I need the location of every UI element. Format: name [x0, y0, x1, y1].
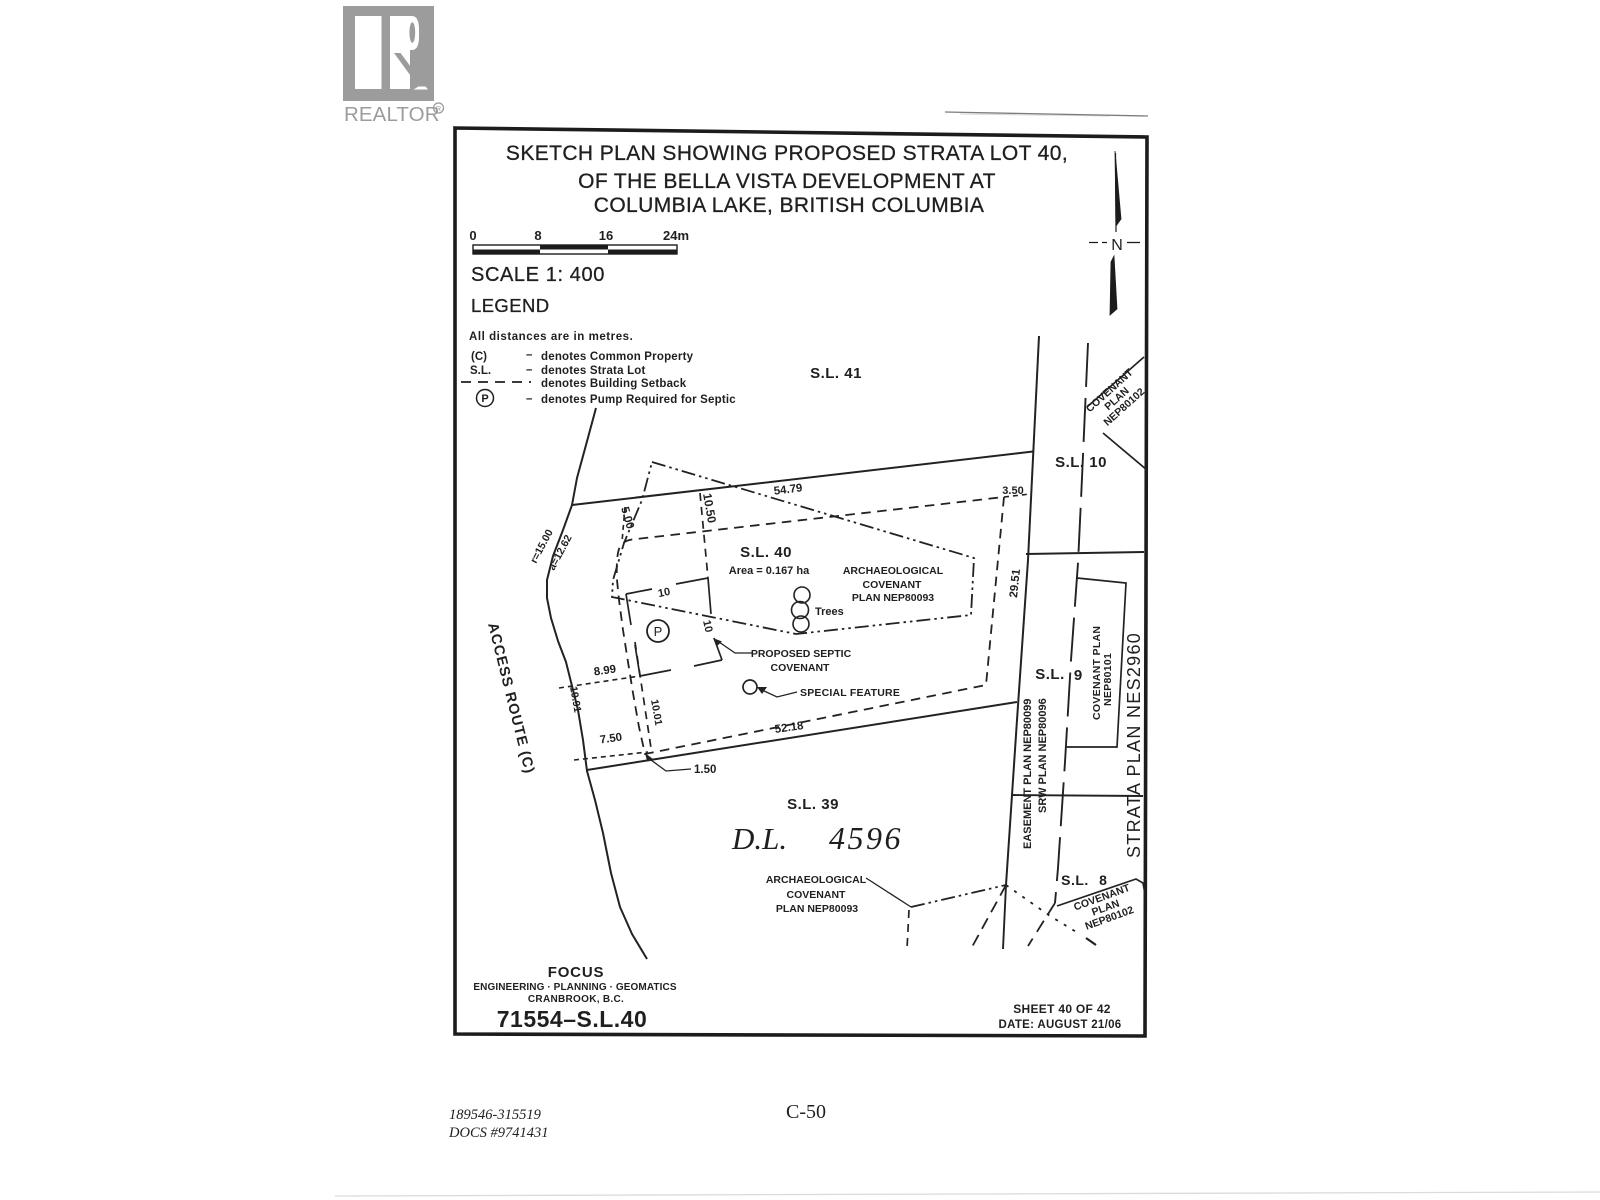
- svg-text:COLUMBIA LAKE, BRITISH COLUMBI: COLUMBIA LAKE, BRITISH COLUMBIA: [594, 194, 985, 217]
- svg-text:COVENANT: COVENANT: [771, 662, 831, 674]
- svg-text:S.L. 40: S.L. 40: [740, 544, 792, 561]
- svg-text:(C): (C): [471, 351, 487, 363]
- svg-text:0: 0: [469, 228, 476, 243]
- svg-text:LEGEND: LEGEND: [471, 295, 549, 316]
- svg-text:10: 10: [657, 586, 671, 600]
- svg-text:ARCHAEOLOGICAL: ARCHAEOLOGICAL: [843, 565, 944, 577]
- svg-text:8: 8: [1099, 872, 1107, 888]
- svg-text:FOCUS: FOCUS: [548, 964, 605, 981]
- svg-text:P: P: [654, 624, 663, 639]
- svg-text:S.L. 41: S.L. 41: [810, 365, 862, 382]
- svg-text:–: –: [526, 364, 533, 376]
- svg-text:PLAN NEP80093: PLAN NEP80093: [852, 592, 934, 604]
- svg-text:R: R: [436, 104, 442, 113]
- svg-text:EASEMENT PLAN NEP80099: EASEMENT PLAN NEP80099: [1022, 699, 1034, 849]
- svg-text:denotes Pump Required for Sept: denotes Pump Required for Septic: [541, 394, 736, 406]
- svg-text:D.L.: D.L.: [731, 821, 787, 856]
- svg-text:8: 8: [534, 228, 541, 243]
- svg-text:S.L.: S.L.: [1061, 872, 1089, 888]
- svg-text:denotes Common Property: denotes Common Property: [541, 351, 694, 363]
- svg-text:SKETCH PLAN SHOWING PROPOSED S: SKETCH PLAN SHOWING PROPOSED STRATA LOT …: [506, 142, 1068, 165]
- svg-text:71554–S.L.40: 71554–S.L.40: [497, 1006, 648, 1032]
- svg-text:SHEET 40 OF 42: SHEET 40 OF 42: [1013, 1002, 1111, 1016]
- svg-text:DATE: AUGUST 21/06: DATE: AUGUST 21/06: [999, 1019, 1122, 1031]
- svg-text:SRW PLAN NEP80096: SRW PLAN NEP80096: [1037, 698, 1049, 813]
- svg-text:189546-315519: 189546-315519: [449, 1107, 542, 1123]
- svg-text:S.L.: S.L.: [470, 365, 491, 377]
- svg-text:S.L.: S.L.: [1035, 666, 1065, 683]
- svg-text:PROPOSED SEPTIC: PROPOSED SEPTIC: [751, 648, 852, 660]
- svg-text:CRANBROOK, B.C.: CRANBROOK, B.C.: [528, 994, 624, 1005]
- svg-text:All distances are in metres.: All distances are in metres.: [469, 331, 633, 343]
- svg-text:STRATA PLAN NES2960: STRATA PLAN NES2960: [1124, 632, 1144, 858]
- svg-text:16: 16: [599, 228, 613, 243]
- svg-text:REALTOR: REALTOR: [344, 103, 440, 126]
- svg-text:DOCS #9741431: DOCS #9741431: [448, 1125, 549, 1141]
- svg-text:ARCHAEOLOGICAL: ARCHAEOLOGICAL: [766, 874, 867, 886]
- svg-text:SPECIAL FEATURE: SPECIAL FEATURE: [800, 687, 900, 699]
- svg-text:S.L. 10: S.L. 10: [1055, 454, 1107, 471]
- svg-text:Trees: Trees: [815, 606, 844, 618]
- svg-text:SCALE 1: 400: SCALE 1: 400: [471, 264, 605, 286]
- svg-text:S.L. 39: S.L. 39: [787, 796, 839, 813]
- svg-text:denotes Building Setback: denotes Building Setback: [541, 378, 687, 390]
- svg-text:N: N: [1111, 237, 1123, 254]
- svg-text:–: –: [526, 349, 533, 361]
- svg-text:PLAN NEP80093: PLAN NEP80093: [776, 903, 858, 915]
- svg-text:4596: 4596: [829, 820, 903, 856]
- svg-text:1.50: 1.50: [694, 764, 716, 776]
- svg-text:P: P: [481, 393, 488, 405]
- svg-text:denotes Strata Lot: denotes Strata Lot: [541, 365, 646, 377]
- svg-text:COVENANT: COVENANT: [863, 579, 923, 591]
- svg-text:COVENANT: COVENANT: [787, 889, 847, 901]
- svg-text:24m: 24m: [663, 228, 689, 243]
- svg-text:NEP80101: NEP80101: [1102, 653, 1114, 706]
- svg-text:Area = 0.167 ha: Area = 0.167 ha: [729, 565, 810, 577]
- svg-text:ENGINEERING · PLANNING · GEOMA: ENGINEERING · PLANNING · GEOMATICS: [473, 982, 676, 993]
- svg-text:3.50: 3.50: [1002, 485, 1023, 497]
- svg-text:–: –: [526, 393, 533, 405]
- svg-text:C-50: C-50: [786, 1101, 826, 1123]
- svg-text:9: 9: [1074, 667, 1082, 684]
- svg-text:OF THE BELLA VISTA DEVELOPMENT: OF THE BELLA VISTA DEVELOPMENT AT: [578, 170, 996, 193]
